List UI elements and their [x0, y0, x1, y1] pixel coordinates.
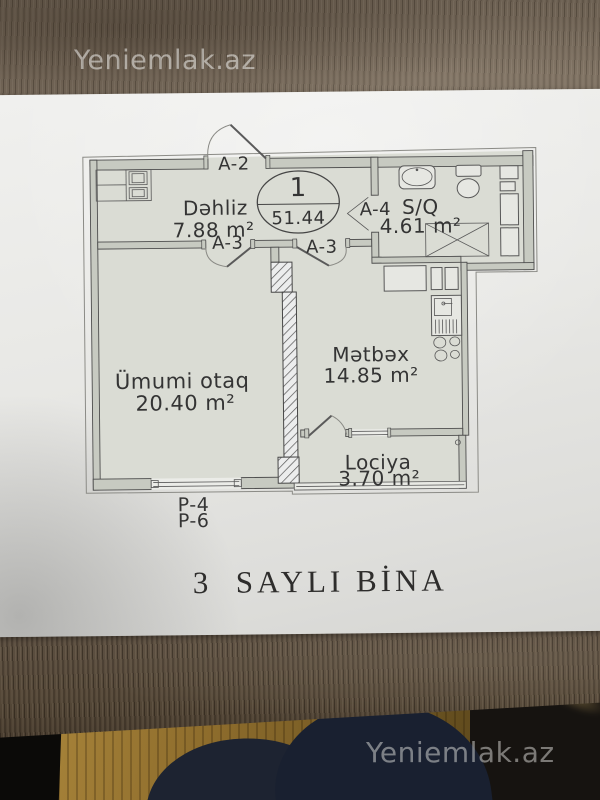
- unit-badge: 1 51.44: [257, 171, 340, 234]
- room-area-living: 20.40 m²: [135, 391, 235, 416]
- room-area-loggia: 3.70 m²: [338, 466, 420, 491]
- living-room-window: [151, 478, 241, 490]
- room-area-bathroom: 4.61 m²: [380, 213, 462, 238]
- unit-total-area: 51.44: [271, 208, 325, 230]
- kitchen-sink-unit: [431, 295, 461, 335]
- room-label-hallway: Dəhliz: [183, 196, 248, 221]
- door-label-a3-right: A-3: [306, 237, 338, 258]
- room-area-kitchen: 14.85 m²: [323, 363, 418, 388]
- loggia-window: [349, 428, 391, 437]
- photo-scene: 1 51.44 A-2 Dəhliz 7.88 m² A-3 A-3 A-4 S…: [0, 0, 600, 800]
- watermark-top: Yeniemlak.az: [74, 45, 256, 76]
- bathroom-sink: [399, 166, 435, 189]
- building-title: 3 SAYLI BİNA: [0, 561, 600, 604]
- watermark-bottom: Yeniemlak.az: [366, 736, 555, 769]
- floorplan-paper: 1 51.44 A-2 Dəhliz 7.88 m² A-3 A-3 A-4 S…: [0, 89, 600, 637]
- window-label-p6: P-6: [178, 510, 210, 532]
- floor-plan: 1 51.44 A-2 Dəhliz 7.88 m² A-3 A-3 A-4 S…: [52, 102, 549, 552]
- door-label-a3-left: A-3: [212, 233, 244, 254]
- door-label-a2: A-2: [218, 154, 250, 175]
- kitchen-cabinets: [384, 265, 458, 291]
- unit-number: 1: [289, 173, 306, 203]
